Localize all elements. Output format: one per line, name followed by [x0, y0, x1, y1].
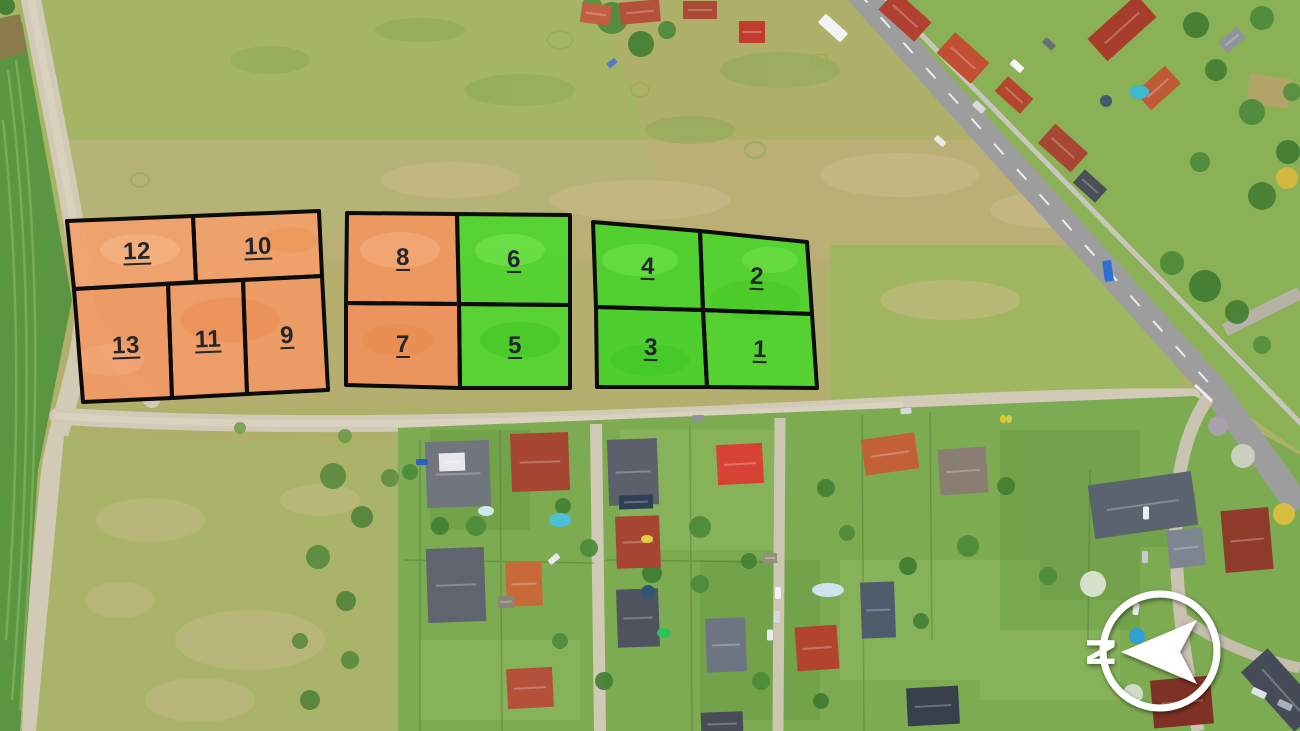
pool [1129, 628, 1145, 644]
tree [292, 633, 308, 649]
car [767, 630, 773, 641]
tree [1239, 99, 1265, 125]
car [774, 611, 780, 623]
house-roof [716, 443, 764, 485]
tree [1205, 59, 1227, 81]
tree [234, 422, 246, 434]
aerial-map: N 1 2 3 4 5 6 7 8 9 10 11 12 13 [0, 0, 1300, 731]
plot-13[interactable] [74, 284, 172, 402]
tree [1250, 6, 1274, 30]
tree [813, 693, 829, 709]
tree [1273, 503, 1295, 525]
pool [1100, 95, 1112, 107]
tree [1225, 300, 1249, 324]
tree [839, 525, 855, 541]
house-roof [619, 494, 653, 509]
tree [689, 516, 711, 538]
house-roof [616, 588, 660, 647]
tree [320, 463, 346, 489]
tree [552, 633, 568, 649]
tree [997, 477, 1015, 495]
tree [658, 21, 676, 39]
tree [741, 553, 757, 569]
house-roof [701, 711, 744, 731]
house-roof [739, 21, 765, 43]
tree [1039, 567, 1057, 585]
house-roof [1166, 527, 1206, 569]
tree [351, 506, 373, 528]
tree [1208, 416, 1228, 436]
plot-1[interactable] [703, 310, 817, 388]
tree [555, 498, 571, 514]
house-roof [861, 432, 919, 475]
aerial-photo: N [0, 0, 1300, 731]
house-roof [510, 432, 570, 492]
pool [549, 513, 571, 527]
tree [300, 690, 320, 710]
tree [381, 469, 399, 487]
house-roof [683, 1, 717, 19]
house-roof [580, 2, 612, 26]
tree [595, 672, 613, 690]
tree [1253, 336, 1271, 354]
residential-path-2 [778, 418, 780, 731]
tree [1190, 152, 1210, 172]
tree [1183, 12, 1209, 38]
pool [1006, 415, 1012, 423]
house-roof [763, 553, 777, 563]
car [692, 415, 704, 421]
house-roof [615, 515, 661, 569]
house-roof [619, 0, 661, 25]
car [416, 459, 428, 465]
tree [817, 479, 835, 497]
tree [1189, 270, 1221, 302]
tree [431, 517, 449, 535]
pool [1000, 415, 1006, 423]
house-roof [506, 667, 554, 709]
tree [899, 557, 917, 575]
pool [478, 506, 494, 516]
house-roof [498, 596, 514, 609]
car [1143, 507, 1149, 520]
tree [336, 591, 356, 611]
house-roof [1220, 507, 1273, 573]
tree [1231, 444, 1255, 468]
house-roof [906, 686, 960, 727]
tree [306, 545, 330, 569]
pool [657, 628, 671, 638]
house-roof [795, 625, 840, 672]
house-roof [426, 547, 487, 623]
pool [1129, 85, 1149, 99]
tree [580, 539, 598, 557]
tree [1160, 251, 1184, 275]
tree [1276, 167, 1298, 189]
north-label: N [1078, 638, 1122, 667]
car [775, 587, 781, 599]
tree [338, 429, 352, 443]
house-roof [860, 581, 896, 638]
tree [628, 31, 654, 57]
tree [402, 464, 418, 480]
house-roof [439, 453, 466, 472]
tree [752, 672, 770, 690]
tree [1080, 571, 1106, 597]
car [1142, 551, 1148, 563]
tree [466, 516, 486, 536]
tree [913, 613, 929, 629]
pool [641, 535, 653, 543]
pool [641, 585, 655, 599]
tree [691, 575, 709, 593]
tree [1248, 182, 1276, 210]
pool [812, 583, 844, 597]
tree [957, 535, 979, 557]
tree [1276, 140, 1300, 164]
house-roof [425, 440, 491, 508]
house-roof [937, 446, 988, 495]
car [900, 408, 911, 415]
tree [341, 651, 359, 669]
house-roof [705, 617, 747, 672]
